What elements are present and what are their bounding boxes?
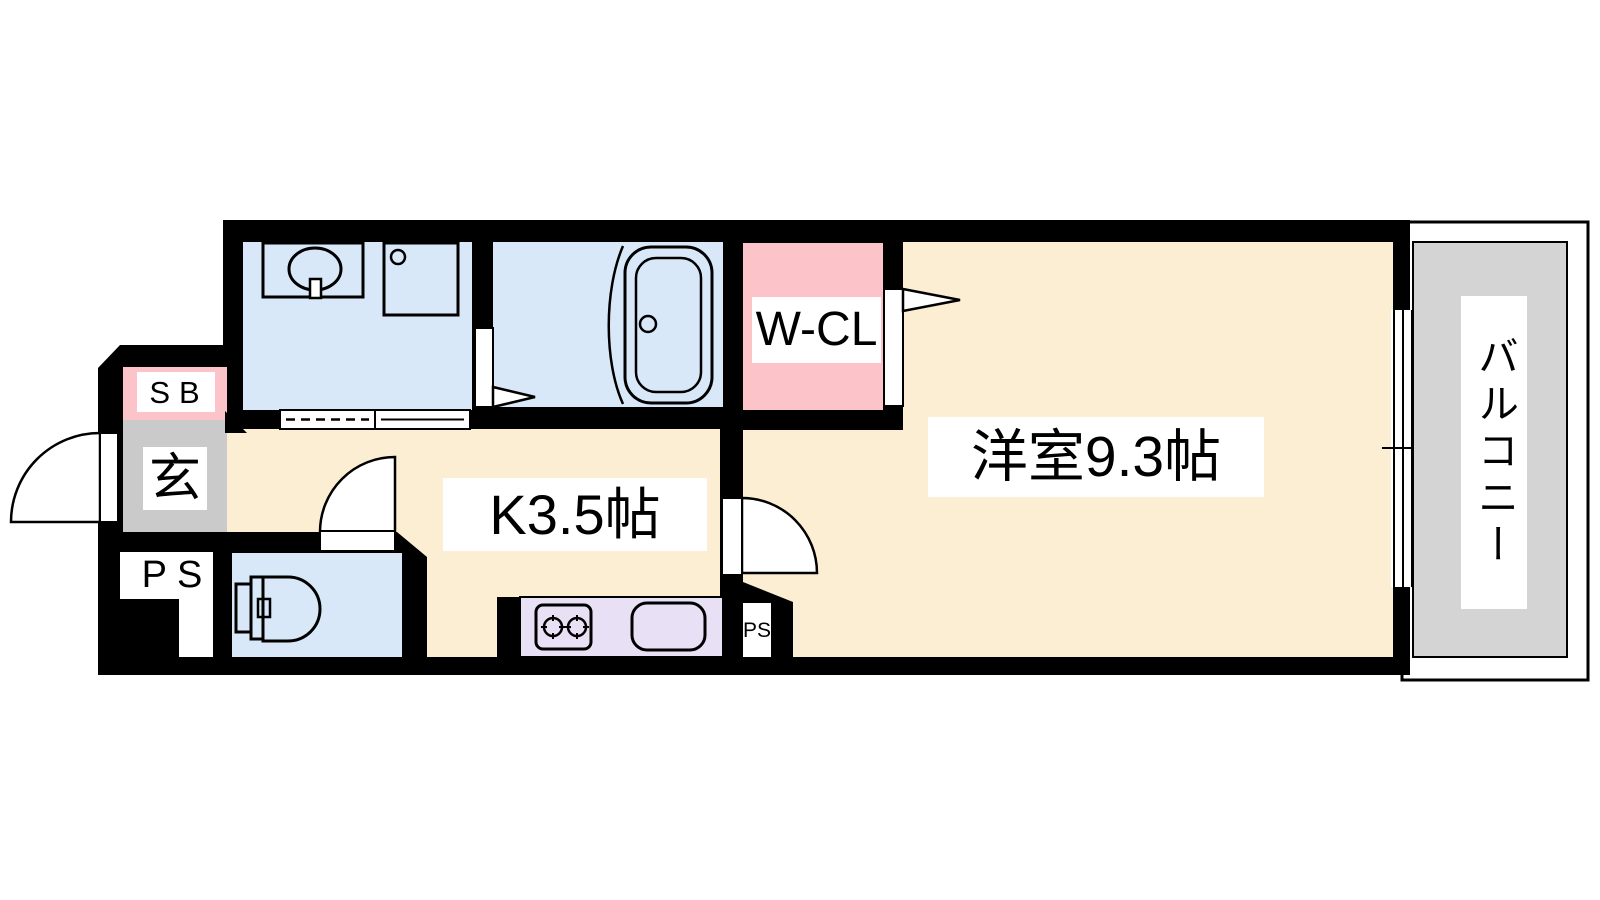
floor-plan-drawing bbox=[0, 0, 1600, 900]
closet-door-leaf bbox=[884, 289, 903, 406]
pipe-space-left-label: PS bbox=[124, 551, 222, 598]
balcony-label: バルコニー bbox=[1461, 296, 1527, 609]
kitchen-label: K3.5帖 bbox=[443, 478, 707, 551]
toilet-door-leaf bbox=[320, 531, 395, 551]
main-room-label: 洋室9.3帖 bbox=[928, 417, 1264, 497]
washroom-sliding-door bbox=[280, 410, 470, 429]
washroom-floor bbox=[243, 242, 472, 410]
entrance-door-swing-arc bbox=[11, 433, 100, 522]
walk-in-closet-label: W-CL bbox=[752, 297, 881, 363]
floor-plan: SB 玄 PS K3.5帖 W-CL 洋室9.3帖 バルコニー PS bbox=[0, 0, 1600, 900]
pipe-space-left-box-lower bbox=[179, 599, 213, 657]
entrance-door-leaf bbox=[100, 433, 118, 522]
kitchen-door-leaf bbox=[722, 498, 742, 575]
entrance-label: 玄 bbox=[143, 447, 207, 510]
shoe-box-label: SB bbox=[137, 372, 215, 412]
bathroom-door-leaf bbox=[475, 328, 493, 407]
pipe-space-bottom-label: PS bbox=[742, 602, 772, 658]
counter-end-wall bbox=[497, 597, 520, 657]
